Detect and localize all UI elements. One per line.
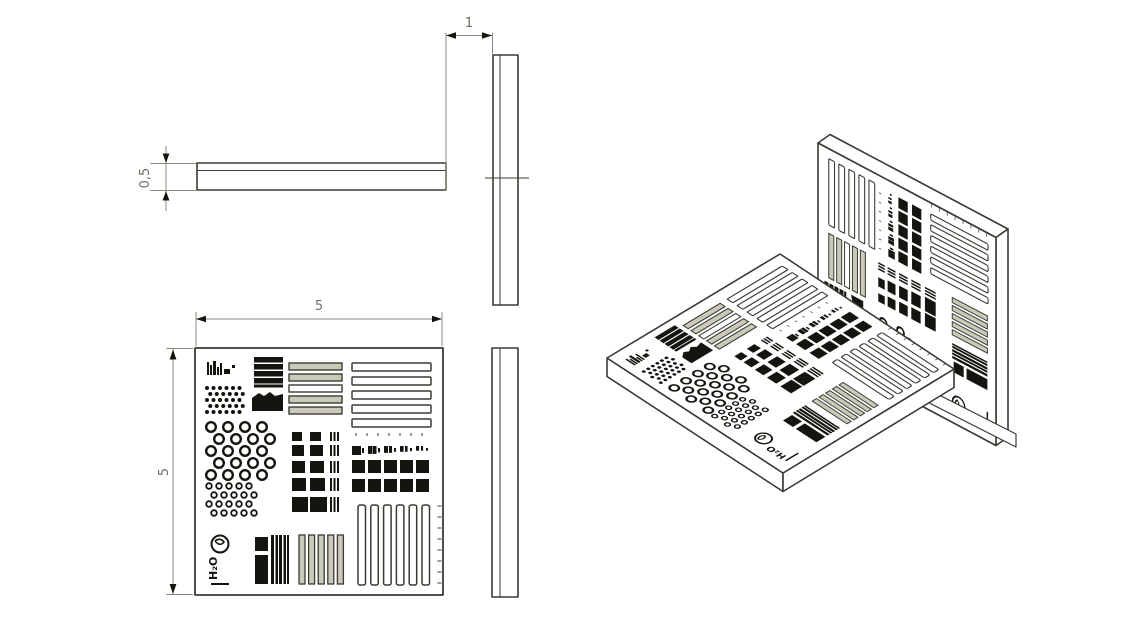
- arrowhead: [446, 32, 456, 39]
- vertical-plate-right-face: [996, 229, 1008, 446]
- side-view-horizontal-plate: 0,5: [138, 146, 446, 211]
- gap-dimension-label: 1: [465, 16, 473, 31]
- plate-side-outline: [197, 163, 446, 190]
- plate-edge-outline: [493, 55, 518, 305]
- edge-view-vertical-plate-bottom: [492, 348, 518, 597]
- face-view-pattern-plate: 5 5: [157, 299, 443, 595]
- cad-drawing: H₂O 0,5 1 5 5: [0, 0, 1140, 642]
- arrowhead: [163, 154, 170, 164]
- arrowhead: [432, 316, 442, 323]
- arrowhead: [170, 350, 177, 360]
- technical-drawing-page: H₂O 0,5 1 5 5: [0, 0, 1140, 642]
- plate-edge-outline: [492, 348, 518, 597]
- edge-view-vertical-plate-top: 1: [446, 16, 529, 305]
- arrowhead: [170, 584, 177, 594]
- height-dimension-label: 5: [157, 468, 172, 476]
- isometric-view: [607, 135, 1016, 492]
- arrowhead: [482, 32, 492, 39]
- arrowhead: [163, 191, 170, 201]
- width-dimension-label: 5: [315, 299, 323, 314]
- thickness-dimension-label: 0,5: [138, 168, 153, 189]
- arrowhead: [196, 316, 206, 323]
